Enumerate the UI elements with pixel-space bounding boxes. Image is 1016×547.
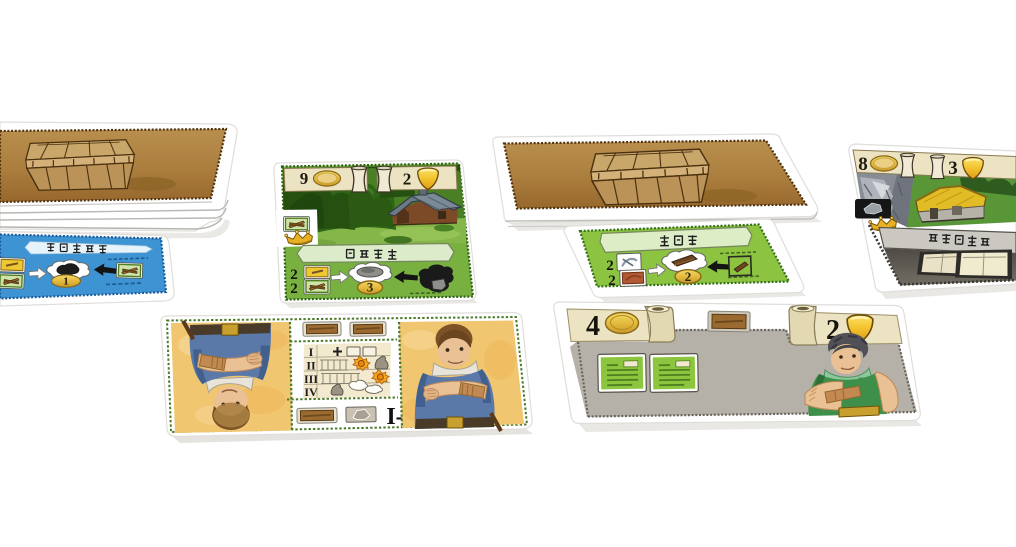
svg-text:9: 9 (300, 169, 309, 188)
svg-text:1: 1 (63, 275, 69, 287)
svg-text:I: I (309, 345, 314, 359)
svg-text:2: 2 (606, 258, 614, 274)
svg-text:3: 3 (948, 158, 958, 179)
svg-text:8: 8 (858, 154, 868, 175)
svg-text:2: 2 (403, 170, 412, 189)
svg-text:2: 2 (608, 273, 616, 289)
svg-text:3: 3 (367, 280, 374, 295)
svg-text:2: 2 (685, 269, 692, 284)
svg-text:III: III (304, 372, 318, 386)
svg-text:II: II (306, 359, 316, 373)
svg-text:IV: IV (304, 385, 318, 399)
svg-text:2: 2 (290, 281, 298, 297)
svg-text:4: 4 (586, 311, 600, 342)
